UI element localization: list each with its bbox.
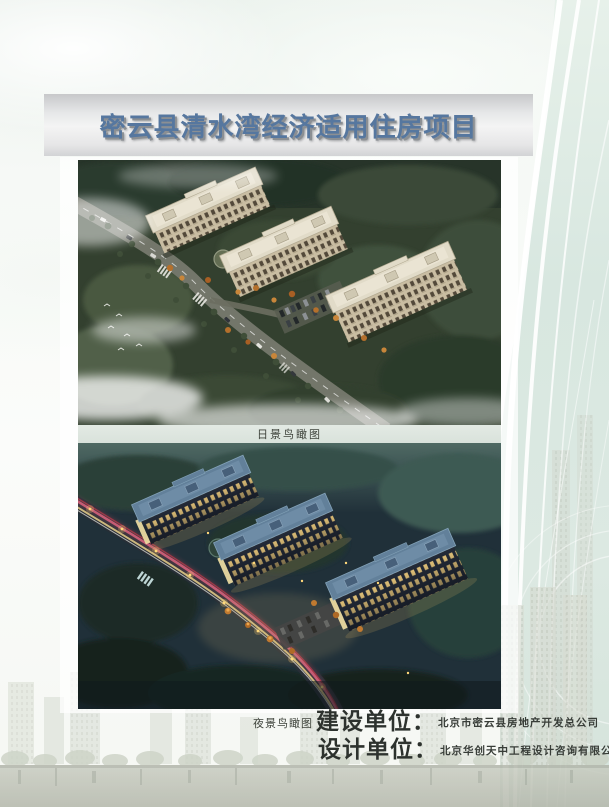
night-aerial-rendering <box>78 443 501 709</box>
design-unit-label: 设计单位 <box>318 738 414 762</box>
design-unit-company: 北京华创天中工程设计咨询有限公司 <box>438 743 609 762</box>
construction-unit-company: 北京市密云县房地产开发总公司 <box>436 715 599 734</box>
construction-unit-colon: ： <box>412 710 436 734</box>
construction-unit-label: 建设单位 <box>316 710 412 734</box>
document-page: 密云县清水湾经济适用住房项目 <box>0 0 609 807</box>
page-title: 密云县清水湾经济适用住房项目 <box>99 107 477 144</box>
title-banner: 密云县清水湾经济适用住房项目 <box>44 94 533 156</box>
design-unit-colon: ： <box>414 738 438 762</box>
construction-unit-row: 建设单位：北京市密云县房地产开发总公司 <box>316 710 599 734</box>
day-aerial-rendering <box>78 160 501 425</box>
day-caption-strip: 日景鸟瞰图 <box>78 425 501 443</box>
night-view-caption: 夜景鸟瞰图 <box>253 715 313 731</box>
design-unit-row: 设计单位：北京华创天中工程设计咨询有限公司 <box>318 738 609 762</box>
day-view-caption: 日景鸟瞰图 <box>257 426 322 442</box>
